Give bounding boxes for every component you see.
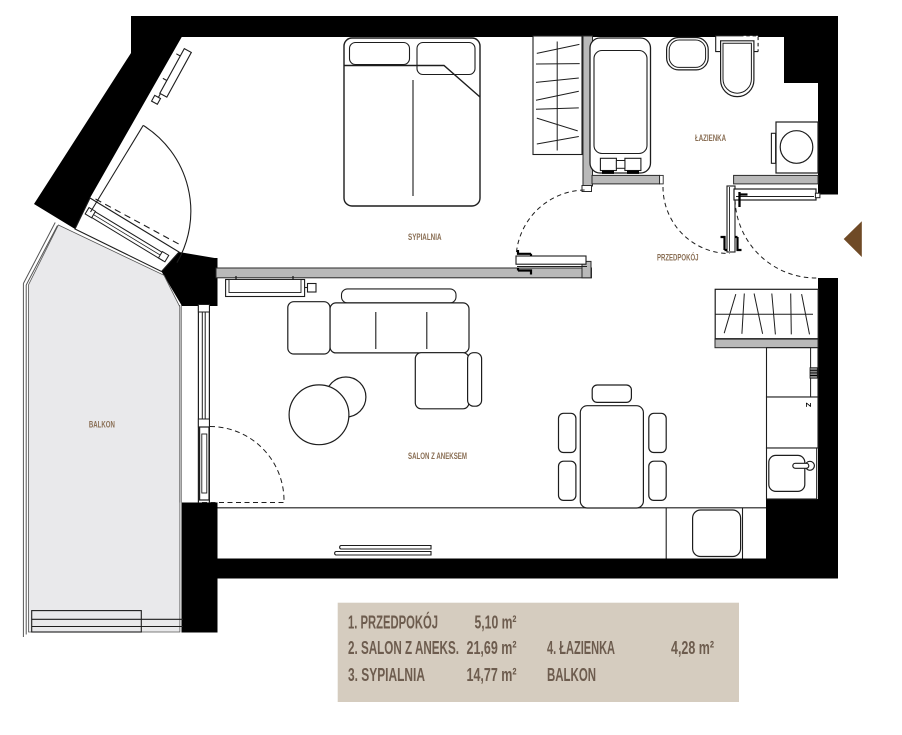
svg-text:SALON Z ANEKSEM: SALON Z ANEKSEM [408,451,467,462]
svg-text:2. SALON Z ANEKS.: 2. SALON Z ANEKS. [348,637,459,658]
svg-text:5,10 m²: 5,10 m² [475,612,517,633]
svg-text:BALKON: BALKON [89,420,115,431]
svg-text:ŁAZIENKA: ŁAZIENKA [695,133,726,144]
svg-text:PRZEDPOKÓJ: PRZEDPOKÓJ [657,252,699,264]
svg-text:4. ŁAZIENKA: 4. ŁAZIENKA [547,637,615,658]
svg-text:Z: Z [804,403,813,408]
svg-text:3. SYPIALNIA: 3. SYPIALNIA [348,664,425,685]
svg-text:4,28 m²: 4,28 m² [671,637,714,658]
svg-text:1. PRZEDPOKÓJ: 1. PRZEDPOKÓJ [348,612,438,633]
svg-text:SYPIALNIA: SYPIALNIA [408,232,442,243]
svg-text:BALKON: BALKON [547,664,596,685]
svg-text:21,69 m²: 21,69 m² [467,637,517,658]
svg-text:14,77 m²: 14,77 m² [467,664,517,685]
